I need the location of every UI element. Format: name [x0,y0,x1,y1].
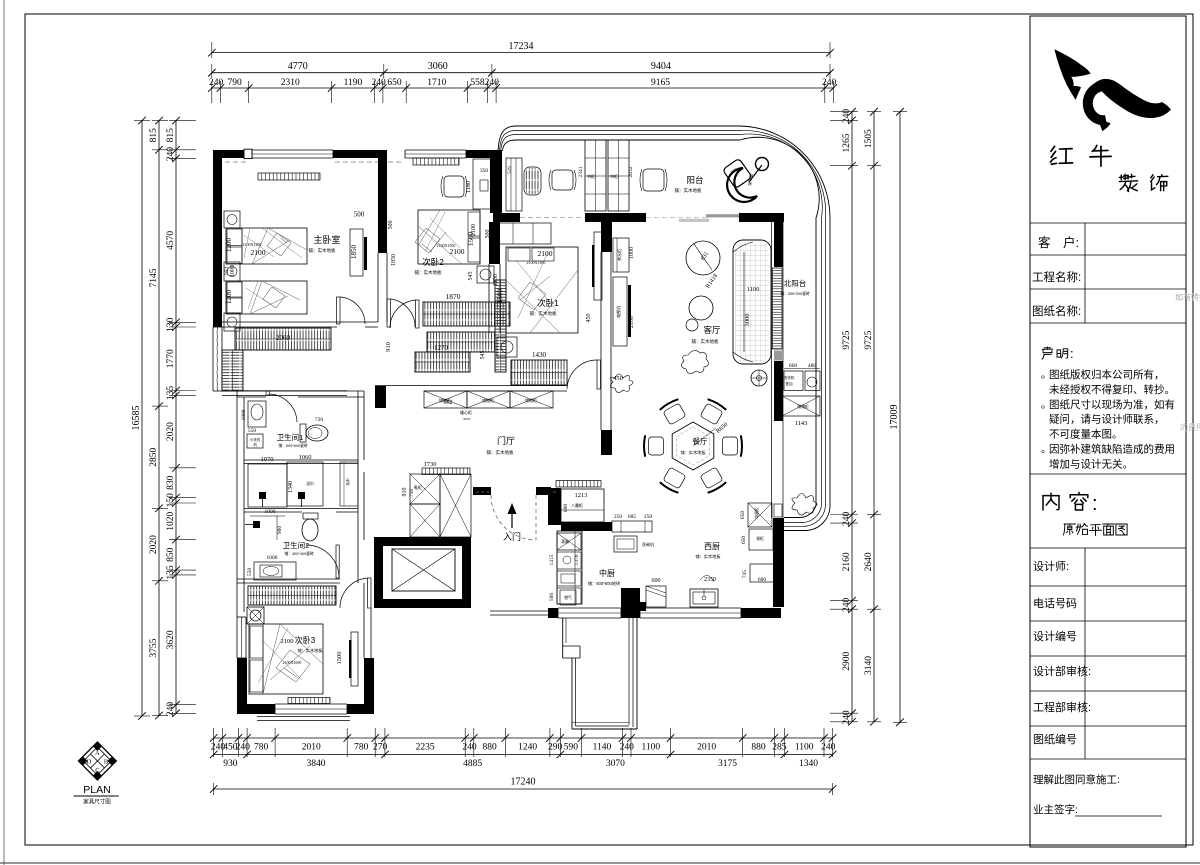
svg-text:增加与设计无关。: 增加与设计无关。 [1049,457,1133,470]
svg-text:1000: 1000 [230,265,236,277]
svg-text:业主签字:: 业主签字: [1033,803,1078,816]
svg-text:9165: 9165 [651,78,670,88]
svg-text:240: 240 [842,710,852,725]
svg-text:储物柜: 储物柜 [797,404,809,409]
svg-text:铺：实木地板: 铺：实木地板 [675,187,702,194]
svg-text:1850: 1850 [391,254,397,266]
svg-text:鲁加: 鲁加 [785,381,793,386]
svg-text:1730: 1730 [424,461,437,468]
svg-text:2100X1600: 2100X1600 [283,660,302,665]
svg-text:240: 240 [842,598,852,613]
svg-text:650: 650 [740,511,746,520]
svg-text:880: 880 [751,743,766,753]
svg-text:2310: 2310 [281,78,300,88]
svg-text:880: 880 [563,504,569,513]
svg-text:卫生间1: 卫生间1 [277,432,304,442]
svg-text:的费用: 的费用 [1180,422,1200,432]
svg-text:1000: 1000 [241,409,247,420]
svg-text:2100: 2100 [471,224,477,236]
svg-text:3755: 3755 [149,638,159,657]
svg-text:350: 350 [480,168,489,174]
svg-text:3620: 3620 [166,630,176,649]
svg-text:910: 910 [402,488,408,497]
svg-text:工程名称:: 工程名称: [1032,270,1081,284]
svg-text:2341: 2341 [578,166,584,177]
svg-text:590: 590 [564,743,579,753]
svg-text:600: 600 [758,577,767,583]
svg-text:850: 850 [166,547,176,562]
svg-text:1500: 1500 [496,289,504,304]
svg-text:1240: 1240 [518,743,537,753]
svg-text:600: 600 [652,578,661,584]
svg-text:铺：实木地板: 铺：实木地板 [309,247,336,254]
svg-text:铺：600*600地砖: 铺：600*600地砖 [588,580,620,587]
svg-text:1870: 1870 [446,292,461,301]
svg-text:2640: 2640 [864,552,874,571]
svg-text:285: 285 [772,743,787,753]
svg-text:250: 250 [644,514,653,520]
svg-text:次卧3: 次卧3 [295,635,316,645]
svg-text:1143: 1143 [795,420,808,427]
svg-text:3000: 3000 [744,314,751,327]
svg-text:550: 550 [247,568,253,577]
svg-text:240: 240 [236,743,251,753]
svg-text:毛巾: 毛巾 [345,478,350,486]
svg-text:650: 650 [741,536,747,545]
svg-text:2020: 2020 [149,535,159,554]
svg-text:135: 135 [166,386,176,401]
svg-text:500: 500 [354,211,365,219]
svg-text:16585: 16585 [131,406,142,431]
svg-text:2100X1200: 2100X1200 [243,242,262,247]
svg-text:2100: 2100 [450,247,465,256]
svg-text:3175: 3175 [718,759,737,769]
svg-text:545: 545 [468,272,474,281]
svg-text:铺：实木地板: 铺：实木地板 [487,449,514,456]
svg-text:500: 500 [388,221,394,230]
svg-text:1370: 1370 [574,554,580,565]
svg-text:书柜: 书柜 [610,173,618,179]
svg-text:450: 450 [586,314,592,323]
svg-text:2010: 2010 [697,743,716,753]
svg-text:450: 450 [613,375,623,382]
svg-text:240: 240 [209,78,224,88]
svg-text:17240: 17240 [511,777,536,788]
svg-text:1200: 1200 [225,290,233,305]
svg-text:780: 780 [254,743,269,753]
svg-text:7145: 7145 [149,268,159,287]
svg-text:电话号码: 电话号码 [1033,597,1077,610]
svg-text:图纸尺寸以现场为准，如有: 图纸尺寸以现场为准，如有 [1049,398,1175,411]
svg-text:240: 240 [166,147,176,162]
svg-text:浴巾: 浴巾 [306,481,314,486]
svg-text:17009: 17009 [889,405,900,430]
svg-text:270: 270 [373,743,388,753]
svg-text:铺：实木地板: 铺：实木地板 [692,338,719,345]
svg-text:2060: 2060 [276,334,291,342]
svg-text:240: 240 [620,743,635,753]
svg-text:铺：实木地板: 铺：实木地板 [297,647,323,654]
svg-text:1265: 1265 [842,133,852,152]
svg-text:2160: 2160 [842,552,852,571]
svg-text:门厅: 门厅 [497,435,515,446]
svg-text:1500: 1500 [336,652,343,665]
svg-text:780: 780 [354,743,369,753]
svg-text:次卧1: 次卧1 [537,298,559,308]
svg-text:八畫柜: 八畫柜 [571,502,583,508]
svg-text:1000: 1000 [629,247,635,259]
svg-text:1140: 1140 [593,743,612,753]
svg-text:洗碗机: 洗碗机 [642,541,654,547]
svg-text:685: 685 [628,514,637,520]
svg-text:燃气: 燃气 [564,595,572,600]
svg-text:1000: 1000 [267,555,278,561]
svg-text:3840: 3840 [307,759,326,769]
svg-text:北阳台: 北阳台 [784,278,807,288]
svg-text:910: 910 [385,342,392,352]
svg-text:9725: 9725 [864,330,874,349]
svg-text:1060: 1060 [299,454,312,461]
svg-text:3060: 3060 [428,61,448,72]
svg-text:蒸箱: 蒸箱 [561,539,569,544]
svg-text:储物柜: 储物柜 [482,397,494,403]
svg-text:电器柜: 电器柜 [754,507,759,519]
svg-text:图纸版权归本公司所有，: 图纸版权归本公司所有， [1049,368,1165,381]
svg-text:1213: 1213 [575,492,588,499]
svg-text:240: 240 [842,109,852,124]
svg-text:1200: 1200 [225,238,233,253]
svg-text:设计师:: 设计师: [1033,560,1069,573]
svg-text:240: 240 [822,78,837,88]
svg-text:电视机: 电视机 [615,306,621,318]
svg-text:储物柜: 储物柜 [525,397,537,403]
svg-text:500: 500 [485,230,491,239]
svg-text:519: 519 [508,166,513,174]
svg-text:650: 650 [775,404,781,413]
svg-text:设计部审核:: 设计部审核: [1033,664,1091,678]
svg-text:4885: 4885 [463,759,482,769]
svg-text:550: 550 [248,428,257,434]
svg-text:250: 250 [614,514,623,520]
svg-text:2100X1500: 2100X1500 [437,243,456,248]
svg-text:1070: 1070 [261,456,274,463]
svg-text:240: 240 [485,78,500,88]
svg-text:铺：实木地板: 铺：实木地板 [530,310,557,317]
svg-text:1430: 1430 [532,351,547,359]
svg-text:不可度量本图。: 不可度量本图。 [1049,428,1123,441]
svg-text:2100: 2100 [629,316,635,328]
svg-text:880: 880 [482,743,497,753]
svg-text:理解此图同意施工:: 理解此图同意施工: [1033,773,1120,786]
svg-text:主卧室: 主卧室 [313,234,340,245]
svg-text:9404: 9404 [651,61,671,72]
svg-text:2032: 2032 [628,166,634,177]
svg-text:500: 500 [549,593,555,602]
svg-text:4770: 4770 [288,61,308,72]
svg-text:铺：300*300瓷砖: 铺：300*300瓷砖 [780,291,810,296]
svg-text:2100: 2100 [538,249,553,258]
svg-text:240: 240 [821,743,836,753]
svg-text:疑问，请与设计师联系，: 疑问，请与设计师联系， [1049,413,1165,426]
svg-text:558: 558 [470,78,485,88]
svg-text:B: B [104,759,109,766]
svg-text:2350: 2350 [704,577,716,583]
svg-text:铺：实木地板: 铺：实木地板 [680,449,706,456]
svg-text:鞋柜: 鞋柜 [414,484,422,490]
svg-text:660: 660 [789,363,798,369]
svg-text:290: 290 [548,743,563,753]
svg-text:930: 930 [223,759,238,769]
svg-text:书柜: 书柜 [587,173,595,179]
svg-text:未经授权不得复印、转抄。: 未经授权不得复印、转抄。 [1049,383,1175,396]
svg-text:铺：实木地板: 铺：实木地板 [695,553,721,560]
svg-text:150: 150 [166,493,176,508]
svg-text:储物柜: 储物柜 [439,397,451,403]
svg-text:铺：实木地板: 铺：实木地板 [415,269,442,276]
svg-text:1100: 1100 [747,286,760,293]
svg-text:815: 815 [149,128,159,143]
svg-text:西厨: 西厨 [704,542,720,551]
svg-text:餐柜: 餐柜 [756,536,764,541]
svg-text:A: A [95,750,100,757]
svg-text:C: C [95,767,99,774]
svg-text:3140: 3140 [864,656,874,675]
svg-text:135: 135 [166,565,176,580]
svg-text:图纸编号: 图纸编号 [1033,732,1077,746]
svg-text:图纸名称:: 图纸名称: [1032,304,1081,318]
svg-text:480: 480 [808,363,817,369]
svg-text:240: 240 [371,78,386,88]
svg-text:中厨: 中厨 [599,568,615,578]
svg-text:900: 900 [277,526,283,535]
svg-text:2850: 2850 [149,447,159,466]
svg-text:次卧2: 次卧2 [422,257,444,267]
svg-text:PLAN: PLAN [83,784,110,796]
svg-text::: : [1070,346,1074,361]
svg-text:工程部审核:: 工程部审核: [1033,700,1091,714]
svg-text:鞗心柜: 鞗心柜 [460,409,472,415]
svg-text:240: 240 [462,743,477,753]
svg-text:1190: 1190 [344,78,363,88]
svg-text:815: 815 [166,128,176,143]
svg-text:830: 830 [166,475,176,490]
svg-text:客厅: 客厅 [703,325,721,335]
svg-text:2020: 2020 [166,422,176,441]
svg-text:2010: 2010 [302,743,321,753]
svg-text:1710: 1710 [427,78,446,88]
svg-text:720: 720 [315,417,324,423]
svg-text:17234: 17234 [509,41,534,52]
svg-text:入门: 入门 [503,531,521,542]
svg-text:客 户:: 客 户: [1038,235,1079,250]
svg-text:因弥补建筑缺陷造成的费用: 因弥补建筑缺陷造成的费用 [1049,443,1175,456]
svg-text:家具尺寸图: 家具尺寸图 [83,798,111,806]
svg-text:1415: 1415 [549,554,555,565]
svg-text:9725: 9725 [842,330,852,349]
svg-text:1000: 1000 [265,509,276,515]
svg-text:130: 130 [166,317,176,332]
svg-text:机: 机 [253,442,257,447]
svg-text:卫生间2: 卫生间2 [283,540,310,550]
svg-text:1340: 1340 [288,481,294,493]
svg-text::: : [1092,493,1098,515]
svg-text:1850: 1850 [350,245,358,260]
svg-text:1505: 1505 [864,129,874,148]
svg-text:2235: 2235 [416,743,435,753]
svg-text:铺：400*400瓷砖: 铺：400*400瓷砖 [284,551,314,556]
svg-text:240: 240 [166,702,176,717]
svg-text:650: 650 [387,78,402,88]
svg-text:1100: 1100 [641,743,660,753]
svg-text:8005: 8005 [464,417,471,421]
svg-text:茶水柜: 茶水柜 [616,249,622,261]
svg-text:545: 545 [480,351,486,360]
svg-text:1340: 1340 [799,759,818,769]
svg-text:1270: 1270 [434,344,449,352]
svg-text:2900: 2900 [842,651,852,670]
svg-text:4570: 4570 [166,231,176,250]
svg-text:745: 745 [742,570,748,579]
svg-text:洗衣机: 洗衣机 [784,375,795,380]
svg-text:790: 790 [227,78,242,88]
svg-text:3070: 3070 [606,759,625,769]
svg-text:小洗衣: 小洗衣 [250,437,261,442]
svg-text:1020: 1020 [166,512,176,531]
svg-text:1100: 1100 [795,743,814,753]
svg-text:阳台: 阳台 [686,175,703,185]
svg-text:1770: 1770 [166,349,176,368]
svg-text:D: D [87,759,92,766]
svg-text:2100: 2100 [281,638,294,645]
svg-text:设计编号: 设计编号 [1033,629,1077,643]
svg-text:240: 240 [842,511,852,526]
svg-text:如有转抄: 如有转抄 [1175,292,1200,302]
svg-text:铺：600*600瓷砖: 铺：600*600瓷砖 [278,443,308,448]
